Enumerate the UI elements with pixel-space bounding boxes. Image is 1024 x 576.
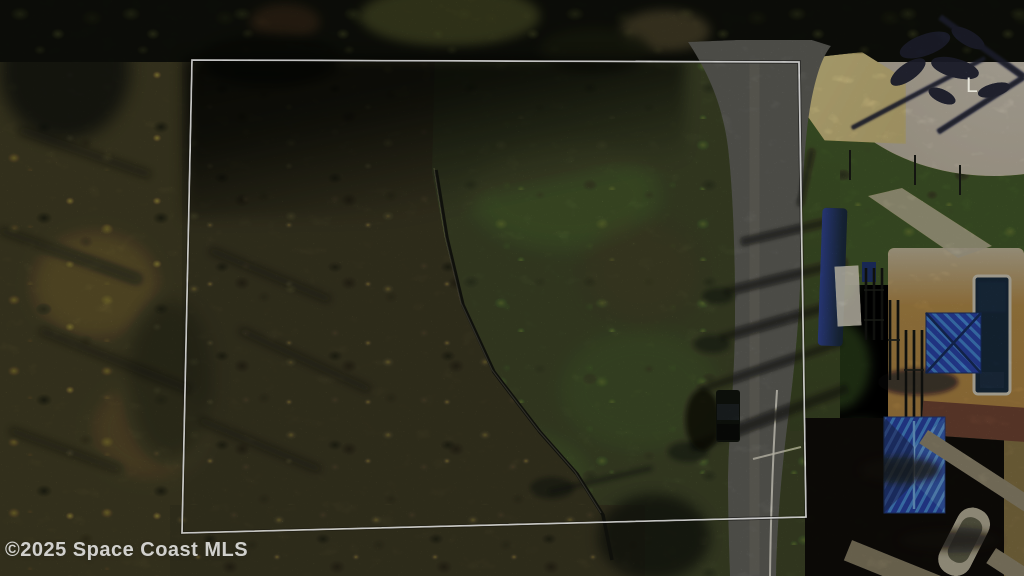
silt-fence-line	[436, 170, 612, 560]
pavement-letter-marking: L	[966, 74, 978, 98]
lawn-posts	[850, 150, 960, 195]
white-tarp	[834, 265, 861, 326]
mls-watermark: ©2025 Space Coast MLS	[5, 539, 248, 562]
concrete-walkway	[868, 188, 992, 258]
cabana-blue-roof	[878, 313, 981, 395]
road-center-sheen	[752, 60, 757, 576]
truck-shadow	[686, 389, 720, 451]
silt-fence-highlight	[434, 168, 601, 513]
aerial-photo: 1.16 ACRES ©2025 Space Coast MLS L	[0, 0, 1024, 576]
vector-detail-layer	[0, 0, 1024, 576]
pickup-truck	[686, 389, 740, 451]
palm-shadow-on-concrete	[852, 17, 1024, 132]
